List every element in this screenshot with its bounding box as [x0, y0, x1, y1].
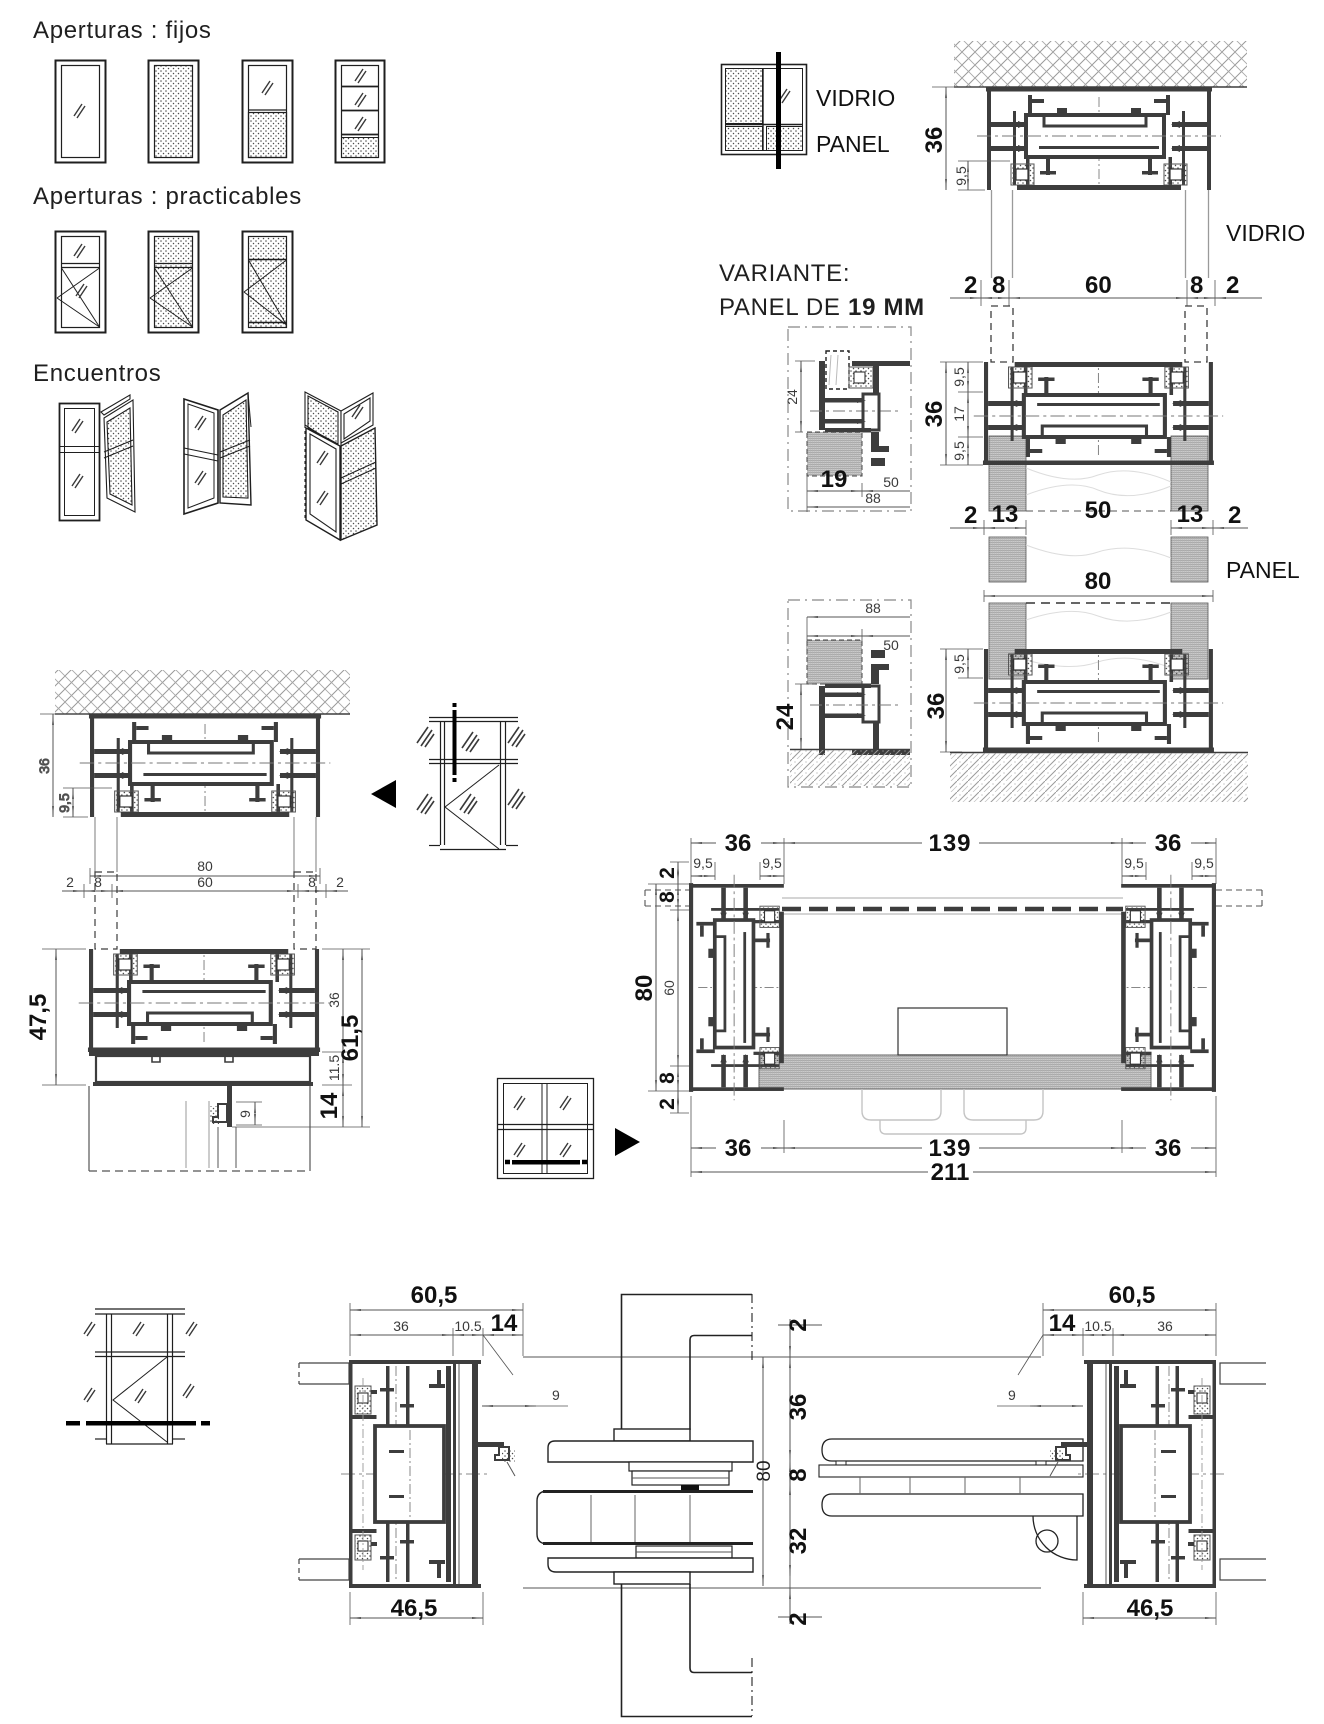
- svg-text:2: 2: [656, 867, 679, 879]
- svg-text:46,5: 46,5: [391, 1595, 438, 1622]
- svg-text:36: 36: [1155, 830, 1182, 857]
- svg-text:9,5: 9,5: [951, 654, 967, 674]
- svg-text:36: 36: [1155, 1135, 1182, 1162]
- svg-text:2: 2: [336, 874, 344, 890]
- svg-text:8: 8: [992, 272, 1005, 299]
- svg-text:80: 80: [1085, 568, 1112, 595]
- svg-text:2: 2: [785, 1318, 812, 1331]
- svg-text:9: 9: [552, 1387, 560, 1403]
- svg-text:14: 14: [316, 1092, 343, 1119]
- svg-text:60,5: 60,5: [1109, 1282, 1156, 1309]
- svg-text:60,5: 60,5: [411, 1282, 458, 1309]
- svg-text:32: 32: [785, 1528, 812, 1555]
- svg-text:60: 60: [197, 874, 213, 890]
- svg-text:8: 8: [308, 874, 316, 890]
- svg-text:10.5: 10.5: [1084, 1318, 1111, 1334]
- svg-text:80: 80: [754, 1460, 775, 1481]
- svg-text:2: 2: [964, 272, 977, 299]
- svg-text:36: 36: [725, 1135, 752, 1162]
- svg-text:13: 13: [1177, 501, 1204, 528]
- svg-text:47,5: 47,5: [25, 994, 52, 1041]
- svg-text:VIDRIO: VIDRIO: [1226, 220, 1305, 246]
- svg-text:9,5: 9,5: [1124, 855, 1144, 871]
- svg-text:9,5: 9,5: [693, 855, 713, 871]
- svg-text:88: 88: [865, 600, 881, 616]
- svg-text:60: 60: [1085, 272, 1112, 299]
- svg-text:VIDRIO: VIDRIO: [816, 85, 895, 111]
- svg-text:80: 80: [631, 975, 658, 1002]
- svg-text:36: 36: [725, 830, 752, 857]
- svg-text:8: 8: [656, 891, 679, 903]
- svg-text:17: 17: [951, 406, 967, 422]
- svg-text:9,5: 9,5: [951, 367, 967, 387]
- svg-text:211: 211: [931, 1159, 970, 1186]
- svg-text:PANEL DE 19 MM: PANEL DE 19 MM: [719, 294, 925, 321]
- svg-text:46,5: 46,5: [1127, 1595, 1174, 1622]
- svg-text:2: 2: [964, 502, 977, 529]
- svg-text:50: 50: [883, 637, 899, 653]
- svg-text:36: 36: [1157, 1318, 1173, 1334]
- svg-text:9,5: 9,5: [762, 855, 782, 871]
- svg-text:8: 8: [656, 1072, 679, 1084]
- svg-text:Aperturas : practicables: Aperturas : practicables: [33, 183, 302, 210]
- svg-text:60: 60: [661, 980, 677, 996]
- svg-text:Encuentros: Encuentros: [33, 360, 161, 387]
- svg-text:36: 36: [785, 1394, 812, 1421]
- svg-text:2: 2: [1226, 272, 1239, 299]
- svg-text:Aperturas : fijos: Aperturas : fijos: [33, 17, 212, 44]
- svg-text:8: 8: [1190, 272, 1203, 299]
- svg-text:36: 36: [923, 693, 950, 720]
- svg-text:9,5: 9,5: [1194, 855, 1214, 871]
- svg-text:24: 24: [784, 389, 800, 405]
- svg-text:50: 50: [883, 474, 899, 490]
- svg-text:PANEL: PANEL: [816, 131, 890, 157]
- svg-text:10.5: 10.5: [454, 1318, 481, 1334]
- svg-text:9: 9: [237, 1110, 253, 1118]
- svg-text:2: 2: [1228, 502, 1241, 529]
- svg-text:9: 9: [1008, 1387, 1016, 1403]
- svg-text:50: 50: [1085, 497, 1112, 524]
- svg-text:8: 8: [785, 1468, 812, 1481]
- svg-text:14: 14: [1049, 1310, 1076, 1337]
- svg-text:2: 2: [785, 1612, 812, 1625]
- svg-text:88: 88: [865, 490, 881, 506]
- svg-text:139: 139: [928, 830, 971, 857]
- svg-text:61,5: 61,5: [337, 1015, 364, 1062]
- svg-text:9,5: 9,5: [951, 441, 967, 461]
- svg-text:36: 36: [393, 1318, 409, 1334]
- svg-text:36: 36: [921, 401, 948, 428]
- svg-text:19: 19: [821, 466, 848, 493]
- svg-text:24: 24: [772, 703, 799, 730]
- svg-text:PANEL: PANEL: [1226, 557, 1300, 583]
- svg-text:2: 2: [66, 874, 74, 890]
- svg-text:36: 36: [921, 127, 948, 154]
- svg-text:13: 13: [992, 501, 1019, 528]
- svg-text:36: 36: [36, 758, 52, 774]
- svg-text:14: 14: [491, 1310, 518, 1337]
- svg-text:80: 80: [197, 858, 213, 874]
- svg-text:VARIANTE:: VARIANTE:: [719, 260, 850, 287]
- svg-text:2: 2: [656, 1098, 679, 1110]
- svg-text:9,5: 9,5: [56, 793, 72, 813]
- svg-text:139: 139: [928, 1135, 971, 1162]
- svg-text:9,5: 9,5: [953, 166, 969, 186]
- svg-text:36: 36: [326, 992, 342, 1008]
